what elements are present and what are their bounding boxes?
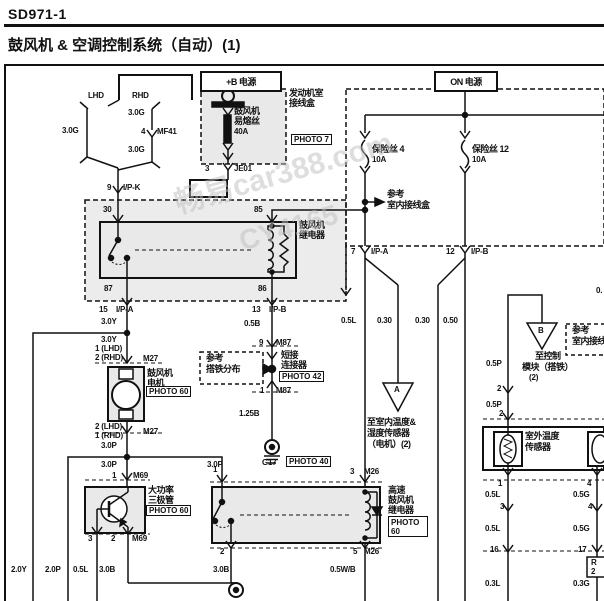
connector-ipa-right: I/P-A <box>371 248 388 256</box>
hs-relay-pin-2: 2 <box>220 548 224 556</box>
transistor-pin-2: 2 <box>111 535 115 543</box>
clipped-box-char-2: 2 <box>591 568 595 576</box>
motor-pin-bot-rhd: 1 (RHD) <box>95 432 123 440</box>
connector-ipk: I/P-K <box>123 184 140 192</box>
wire-0-50: 0.50 <box>443 317 458 325</box>
sensor-pin-2: 2 <box>499 410 503 418</box>
wire-0-5l-s2: 0.5L <box>485 525 500 533</box>
clipped-box-char-1: R <box>591 559 597 567</box>
hs-relay-label-3: 继电器 <box>388 506 414 515</box>
wire-3-0g-rhd-2: 3.0G <box>128 146 145 154</box>
connector-m69-bottom: M69 <box>132 535 147 543</box>
connector-mf41: MF41 <box>157 128 177 136</box>
sensor2-pin-4: 4 <box>587 480 591 488</box>
offpage-b: B <box>538 327 544 335</box>
wire-3-0b-left: 3.0B <box>99 566 115 574</box>
transistor-pin-1: 1 <box>112 472 116 480</box>
indoor-junction-box <box>346 89 604 246</box>
motor-pin-top-lhd: 1 (LHD) <box>95 345 122 353</box>
blower-relay <box>100 215 296 278</box>
wire-partial-right: 0. <box>596 287 602 295</box>
fuse12-label: 保险丝 12 <box>472 145 509 154</box>
wire-2-0y: 2.0Y <box>11 566 27 574</box>
photo-60-hs-relay-ref: PHOTO 60 <box>388 516 428 537</box>
hs-relay-pin-3: 3 <box>350 468 354 476</box>
pin-3-je01: 3 <box>205 165 209 173</box>
offpage-a: A <box>394 386 400 394</box>
ref-ground-dist-1: 参考 <box>206 354 223 363</box>
fusible-link-label-1: 鼓风机 <box>234 107 260 116</box>
label-rhd: RHD <box>132 92 149 100</box>
ref-ground-dist-2: 搭铁分布 <box>206 365 240 374</box>
blower-relay-label-2: 继电器 <box>299 231 325 240</box>
fuse4-rating: 10A <box>372 156 386 164</box>
wire-2-0p: 2.0P <box>45 566 61 574</box>
wiring-diagram-page: SD971-1 鼓风机 & 空调控制系统（自动）(1) <box>0 0 604 601</box>
ambient-sensor-label-2: 传感器 <box>525 443 551 452</box>
wire-1-25b: 1.25B <box>239 410 259 418</box>
connector-m27-top: M27 <box>143 355 158 363</box>
blower-motor-label-1: 鼓风机 <box>147 369 173 378</box>
fusible-link-label-2: 易熔丝 <box>234 117 260 126</box>
pin-12-ipb: 12 <box>446 248 455 256</box>
wire-0-3l: 0.3L <box>485 580 500 588</box>
jumper-label-2: 连接器 <box>281 361 307 370</box>
connector-m69-top: M69 <box>133 472 148 480</box>
connector-m87-bottom: M87 <box>276 387 291 395</box>
wire-0-30-b: 0.30 <box>415 317 430 325</box>
wire-3-0p-1: 3.0P <box>101 442 117 450</box>
photo-7-ref: PHOTO 7 <box>291 134 332 145</box>
photo-60-hs-line2: 60 <box>391 527 425 536</box>
wire-0-5l-mid: 0.5L <box>341 317 356 325</box>
relay-pin-30: 30 <box>103 206 112 214</box>
sensor-pin-1: 1 <box>498 480 502 488</box>
engine-room-box-label-2: 接线盒 <box>289 99 315 108</box>
connector-je01: JE01 <box>234 165 252 173</box>
photo-60-motor-ref: PHOTO 60 <box>146 386 191 397</box>
wire-3-0g-rhd-1: 3.0G <box>128 109 145 117</box>
wire-0-5l-bottom: 0.5L <box>73 566 88 574</box>
ambient-sensor-label-1: 室外温度 <box>525 432 559 441</box>
sensor-conn-2a: 2 <box>497 385 501 393</box>
transistor-pin-3: 3 <box>88 535 92 543</box>
wire-0-5b: 0.5B <box>244 320 260 328</box>
relay-pin-86: 86 <box>258 285 267 293</box>
conn-3: 3 <box>500 503 504 511</box>
label-lhd: LHD <box>88 92 104 100</box>
to-indoor-sensor-3: （电机）(2) <box>367 440 411 449</box>
wire-0-5p-1: 0.5P <box>486 360 502 368</box>
pin-15-ipa: 15 <box>99 306 108 314</box>
fuse12-symbol <box>462 140 469 168</box>
to-indoor-sensor-1: 至室内温度& <box>367 418 416 427</box>
wire-0-5g-s2: 0.5G <box>573 525 590 533</box>
conn-16: 16 <box>490 546 499 554</box>
connector-ipa-left: I/P-A <box>116 306 133 314</box>
to-control-module-3: (2) <box>529 374 538 382</box>
to-control-module-2: 模块（搭铁） <box>522 363 573 372</box>
hs-relay-pin-5: 5 <box>353 548 357 556</box>
fuse4-symbol <box>362 140 369 168</box>
power-transistor-label-2: 三极管 <box>148 496 174 505</box>
hs-relay-label-1: 高速 <box>388 486 405 495</box>
to-indoor-sensor-2: 湿度传感器 <box>367 429 410 438</box>
pin-4-mf41: 4 <box>141 128 145 136</box>
bottom-ground-symbol <box>128 583 243 597</box>
connector-ipb-right: I/P-B <box>471 248 488 256</box>
b-plus-power-box: +B 电源 <box>200 71 282 92</box>
wire-0-3g: 0.3G <box>573 580 590 588</box>
connector-m87-top: M87 <box>276 339 291 347</box>
to-control-module-1: 至控制 <box>535 352 561 361</box>
wire-3-0b-relay: 3.0B <box>213 566 229 574</box>
pin-9-m87: 9 <box>259 339 263 347</box>
engine-room-box-label-1: 发动机室 <box>289 89 323 98</box>
wire-0-5p-2: 0.5P <box>486 401 502 409</box>
wire-3-0y-1: 3.0Y <box>101 318 117 326</box>
photo-60-transistor-ref: PHOTO 60 <box>146 505 191 516</box>
pin-7-ipa: 7 <box>351 248 355 256</box>
on-power-box: ON 电源 <box>434 71 498 92</box>
wire-3-0p-2: 3.0P <box>101 461 117 469</box>
ground-g17-label: G17 <box>262 459 277 467</box>
jumper-label-1: 短接 <box>281 351 298 360</box>
pin-9-ipk: 9 <box>107 184 111 192</box>
photo-60-hs-line1: PHOTO <box>391 518 425 527</box>
relay-pin-85: 85 <box>254 206 263 214</box>
relay-pin-87: 87 <box>104 285 113 293</box>
fusible-link-rating: 40A <box>234 128 248 136</box>
wire-0-5l-s1: 0.5L <box>485 491 500 499</box>
wire-0-5wb: 0.5W/B <box>330 566 355 574</box>
motor-pin-bot-lhd: 2 (LHD) <box>95 423 122 431</box>
ref-arrow-indoor-box <box>375 198 384 206</box>
ref-indoor-box-right-1: 参考 <box>572 326 589 335</box>
pin-1-m87: 1 <box>260 387 264 395</box>
fuse12-rating: 10A <box>472 156 486 164</box>
power-transistor-label-1: 大功率 <box>148 486 174 495</box>
wire-0-30-a: 0.30 <box>377 317 392 325</box>
pin-13-ipb: 13 <box>252 306 261 314</box>
ref-indoor-box-1: 参考 <box>387 190 404 199</box>
connector-m26-top: M26 <box>364 468 379 476</box>
hs-relay-label-2: 鼓风机 <box>388 496 414 505</box>
connector-m26-bottom: M26 <box>364 548 379 556</box>
ref-indoor-box-right-2: 室内接线盒 <box>572 337 604 346</box>
wire-3-0g-lhd: 3.0G <box>62 127 79 135</box>
conn-4: 4 <box>588 503 592 511</box>
conn-17: 17 <box>578 546 587 554</box>
connector-ipb-left: I/P-B <box>269 306 286 314</box>
motor-pin-top-rhd: 2 (RHD) <box>95 354 123 362</box>
photo-40-ref: PHOTO 40 <box>286 456 331 467</box>
blower-relay-label-1: 鼓风机 <box>299 221 325 230</box>
photo-42-ref: PHOTO 42 <box>279 371 324 382</box>
connector-m27-bottom: M27 <box>143 428 158 436</box>
hs-relay-pin-1: 1 <box>213 466 217 474</box>
wire-3-0y-2: 3.0Y <box>101 336 117 344</box>
fuse4-label: 保险丝 4 <box>372 145 404 154</box>
ref-indoor-box-2: 室内接线盒 <box>387 201 430 210</box>
wire-0-5g-s1: 0.5G <box>573 491 590 499</box>
